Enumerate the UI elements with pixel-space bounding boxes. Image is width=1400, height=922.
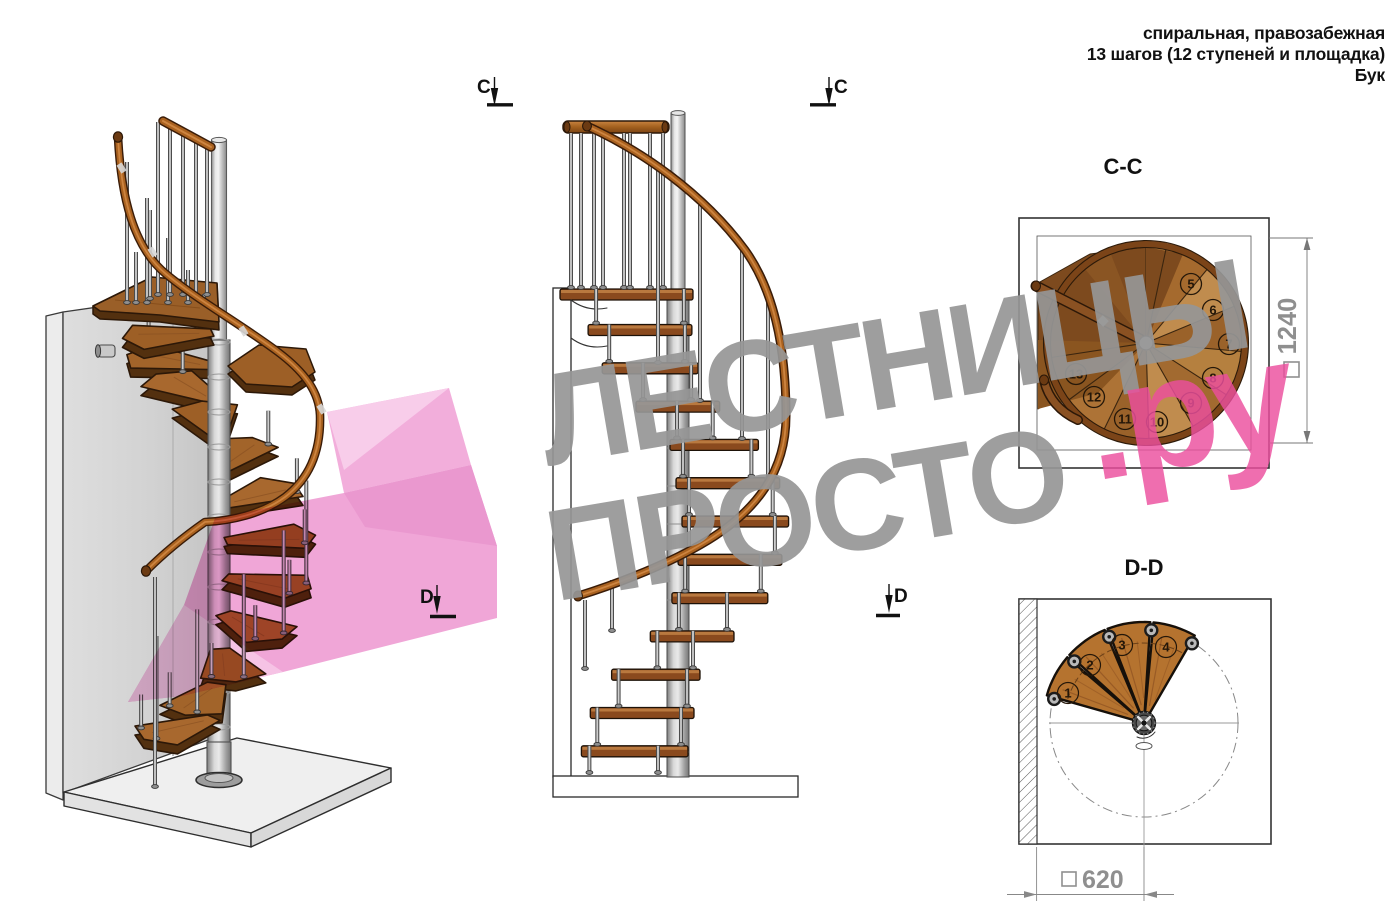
svg-text:C-C: C-C bbox=[1103, 154, 1142, 179]
svg-text:4: 4 bbox=[1162, 640, 1170, 655]
svg-text:1: 1 bbox=[1064, 686, 1071, 701]
svg-text:.ру: .ру bbox=[1071, 305, 1310, 514]
svg-text:D-D: D-D bbox=[1124, 555, 1163, 580]
svg-text:13 шагов (12 ступеней и площад: 13 шагов (12 ступеней и площадка) bbox=[1087, 44, 1385, 64]
svg-text:Бук: Бук bbox=[1355, 65, 1386, 85]
svg-text:3: 3 bbox=[1118, 638, 1125, 653]
svg-text:спиральная, правозабежная: спиральная, правозабежная bbox=[1143, 23, 1385, 43]
svg-text:D: D bbox=[420, 587, 434, 608]
svg-text:D: D bbox=[894, 586, 908, 607]
svg-text:C: C bbox=[834, 77, 848, 98]
svg-text:C: C bbox=[477, 77, 491, 98]
svg-text:2: 2 bbox=[1086, 658, 1093, 673]
svg-text:620: 620 bbox=[1082, 866, 1124, 894]
